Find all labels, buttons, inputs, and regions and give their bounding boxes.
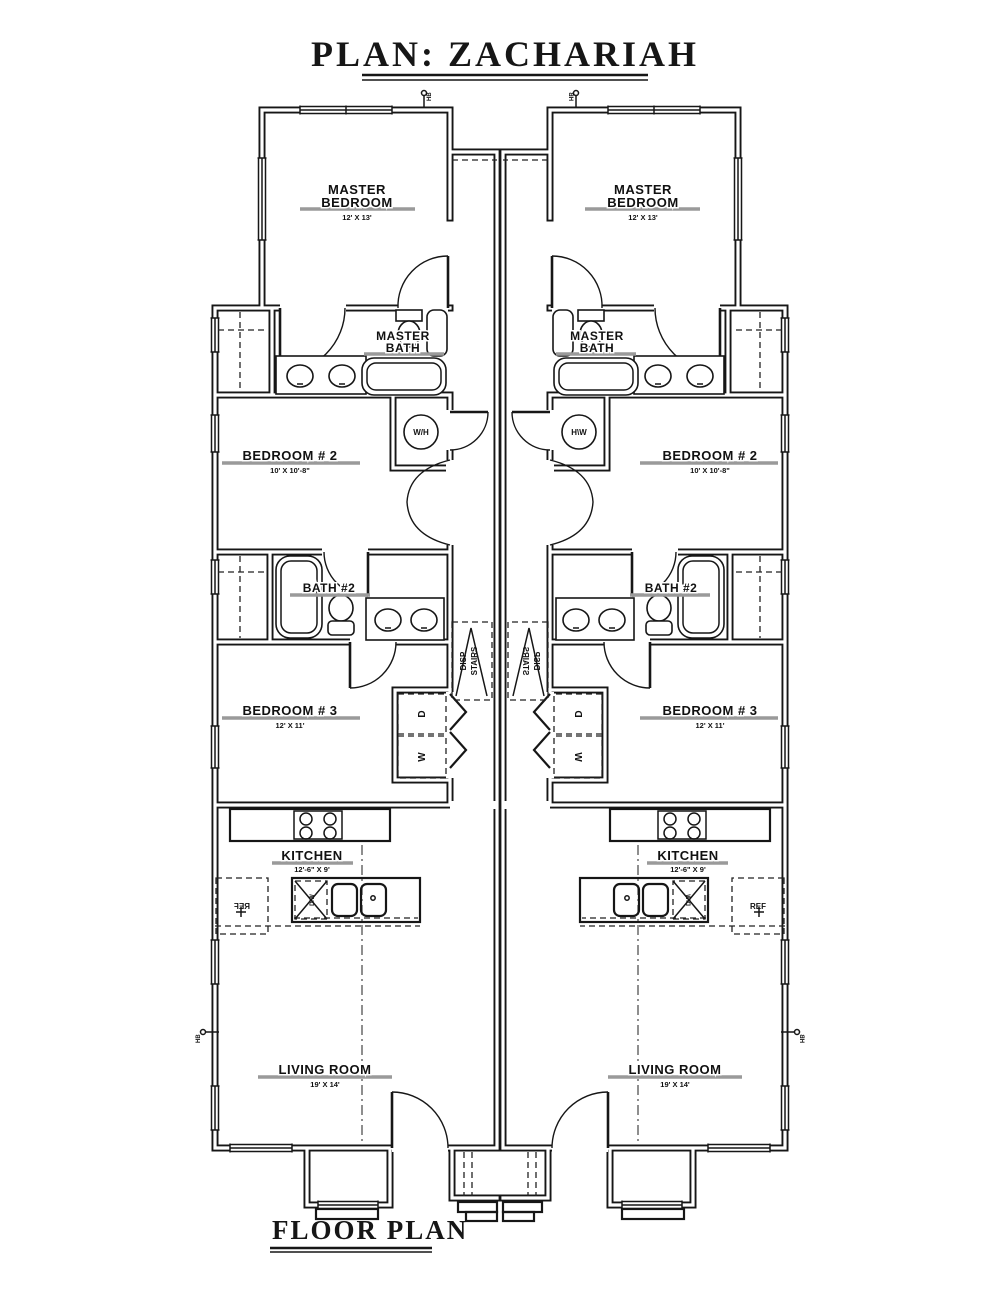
hose-bibb-label: HB <box>196 1034 202 1043</box>
water-heater-label: W/H <box>413 428 429 437</box>
bedroom-3-dims: 12' X 11' <box>275 721 304 730</box>
tub <box>276 556 322 638</box>
master-bedroom-dims: 12' X 13' <box>342 213 372 222</box>
svg-text:BEDROOM: BEDROOM <box>321 195 392 210</box>
svg-text:BATH: BATH <box>386 341 420 355</box>
bedroom-2-dims: 10' X 10'-8" <box>270 466 310 475</box>
attic-stairs: DISP STAIRS <box>452 622 492 700</box>
living-room-label: LIVING ROOM <box>629 1062 722 1077</box>
kitchen-sink <box>332 884 357 916</box>
bedroom-2-dims: 10' X 10'-8" <box>690 466 730 475</box>
bedroom-3-label: BEDROOM # 3 <box>662 703 757 718</box>
unit-floorplan-geometry: W/H DISP STAIRS D W <box>196 91 497 1222</box>
bedroom-3-dims: 12' X 11' <box>695 721 724 730</box>
dryer-label: D <box>417 710 428 717</box>
bedroom-2-label: BEDROOM # 2 <box>242 448 337 463</box>
living-room-dims: 19' X 14' <box>660 1080 690 1089</box>
refrigerator-label: REF <box>234 902 250 911</box>
svg-text:BATH: BATH <box>580 341 614 355</box>
master-bedroom-dims: 12' X 13' <box>628 213 658 222</box>
wall-openings <box>280 304 496 1152</box>
svg-text:BEDROOM: BEDROOM <box>607 195 678 210</box>
dashed-lines <box>215 160 497 1196</box>
floor-plan-drawing: W/H DISP STAIRS D W <box>0 0 1000 1294</box>
washer-label: W <box>417 752 428 762</box>
bedroom-2-label: BEDROOM # 2 <box>662 448 757 463</box>
bath-2-label: BATH #2 <box>303 581 356 595</box>
shower <box>427 310 447 356</box>
toilet-tank <box>396 310 422 321</box>
hose-bibb-label: HB <box>427 92 433 101</box>
floor-plan-page: W/H DISP STAIRS D W <box>0 0 1000 1294</box>
drawing-caption: FLOOR PLAN <box>272 1215 468 1245</box>
kitchen-dims: 12'-6" X 9' <box>294 865 330 874</box>
water-heater: W/H <box>404 415 438 449</box>
living-room-dims: 19' X 14' <box>310 1080 340 1089</box>
windows <box>211 106 393 1210</box>
bedroom-3-label: BEDROOM # 3 <box>242 703 337 718</box>
plan-title: PLAN: ZACHARIAH <box>311 34 699 74</box>
living-room-label: LIVING ROOM <box>279 1062 372 1077</box>
kitchen-label: KITCHEN <box>281 848 342 863</box>
dishwasher-label: D/W <box>310 894 316 906</box>
unit-floorplan-mirrored <box>503 91 804 1222</box>
bath-2-label: BATH #2 <box>645 581 698 595</box>
attic-stairs-label-2: STAIRS <box>470 646 479 675</box>
bath2-fixtures <box>276 556 444 640</box>
walls <box>215 110 497 1205</box>
kitchen-dims: 12'-6" X 9' <box>670 865 706 874</box>
toilet-tank <box>328 621 354 635</box>
attic-stairs-label-1: DISP <box>459 651 468 670</box>
kitchen-label: KITCHEN <box>657 848 718 863</box>
washer-dryer: D W <box>398 694 446 778</box>
toilet-bowl <box>329 595 353 621</box>
